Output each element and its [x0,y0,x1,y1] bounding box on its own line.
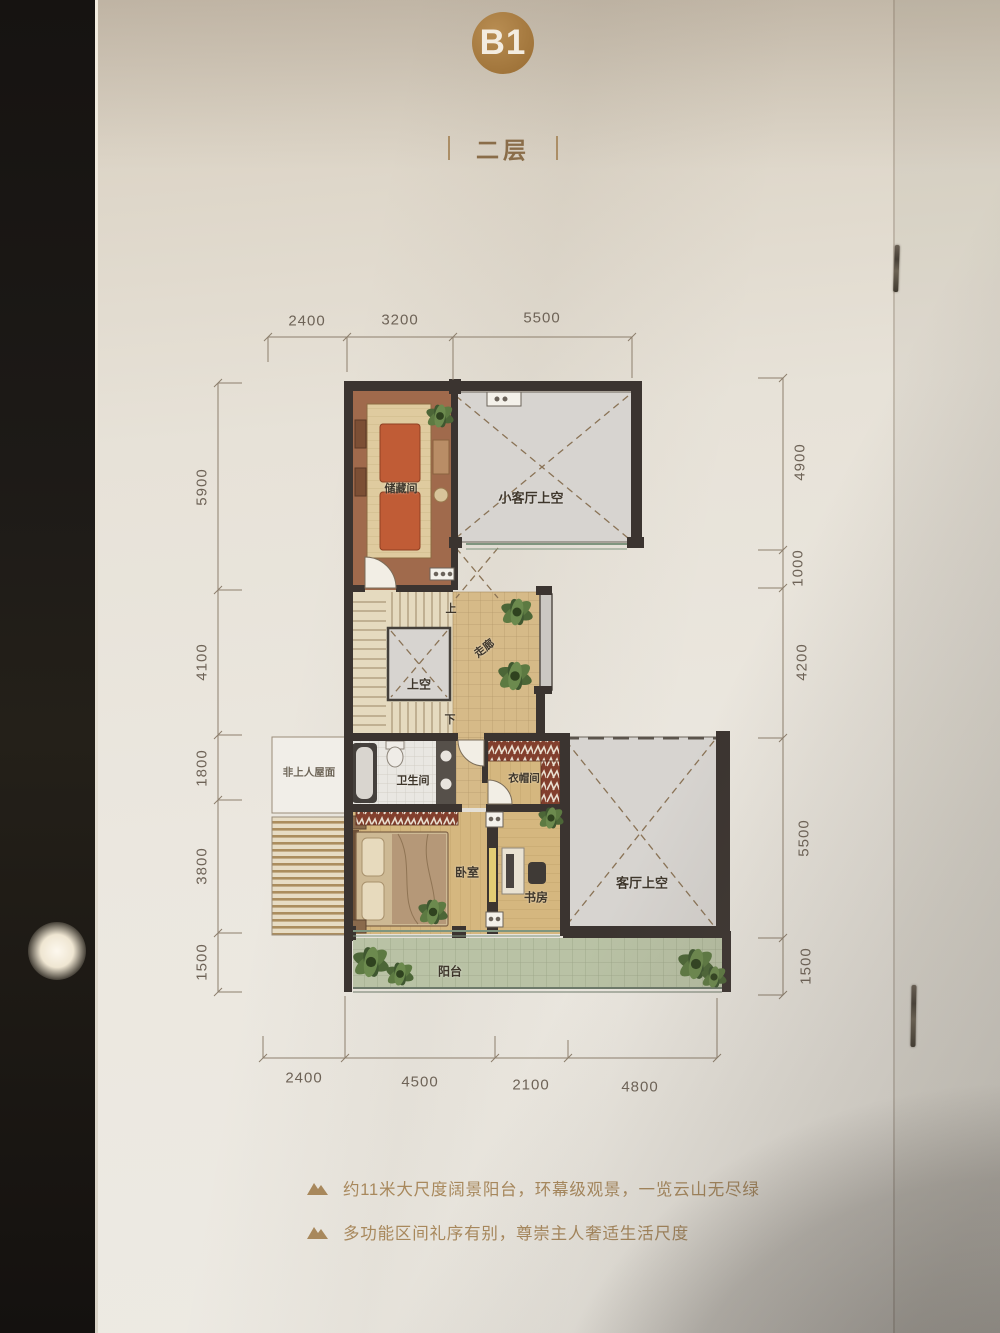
room-label-storage: 储藏间 [385,480,418,496]
mountain-icon [306,1224,330,1240]
dim-bottom-3: 2100 [512,1077,549,1094]
room-label-balcony: 阳台 [438,963,462,980]
stair-down-label: 下 [445,711,456,727]
stair-up-label: 上 [446,600,457,616]
feature-bullet-2: 多功能区间礼序有别，尊崇主人奢适生活尺度 [306,1220,689,1244]
room-label-living-void: 客厅上空 [616,873,668,892]
dim-right-5: 1500 [798,947,815,984]
room-label-small-living-void: 小客厅上空 [498,488,563,507]
dim-left-2: 4100 [194,643,211,680]
dim-bottom-1: 2400 [285,1070,322,1087]
study-niche [489,848,496,902]
dim-bottom-4: 4800 [621,1079,658,1096]
room-label-void: 上空 [407,676,431,693]
feature-text-1: 约11米大尺度阔景阳台，环幕级观景，一览云山无尽绿 [343,1176,760,1200]
dim-left-4: 3800 [194,847,211,884]
dim-bottom-2: 4500 [401,1074,438,1091]
dim-left-5: 1500 [194,943,211,980]
dim-left-1: 5900 [194,468,211,505]
photo-of-brochure-page: B1 二层 [0,0,1000,1333]
dim-right-3: 4200 [794,643,811,680]
dim-top-3: 5500 [523,310,560,327]
dim-right-2: 1000 [790,549,807,586]
floor-plan [0,0,1000,1333]
mountain-icon [306,1180,330,1196]
dim-right-1: 4900 [792,443,809,480]
room-label-non-access-roof: 非上人屋面 [283,765,336,780]
feature-bullet-1: 约11米大尺度阔景阳台，环幕级观景，一览云山无尽绿 [306,1176,760,1200]
feature-text-2: 多功能区间礼序有别，尊崇主人奢适生活尺度 [343,1220,689,1244]
dim-top-2: 3200 [381,312,418,329]
room-label-bedroom: 卧室 [455,864,479,881]
room-label-cloakroom: 衣帽间 [508,771,540,786]
room-label-bathroom: 卫生间 [397,772,430,788]
dim-left-3: 1800 [194,749,211,786]
room-label-study: 书房 [524,889,548,906]
dim-top-1: 2400 [288,313,325,330]
dim-right-4: 5500 [796,819,813,856]
